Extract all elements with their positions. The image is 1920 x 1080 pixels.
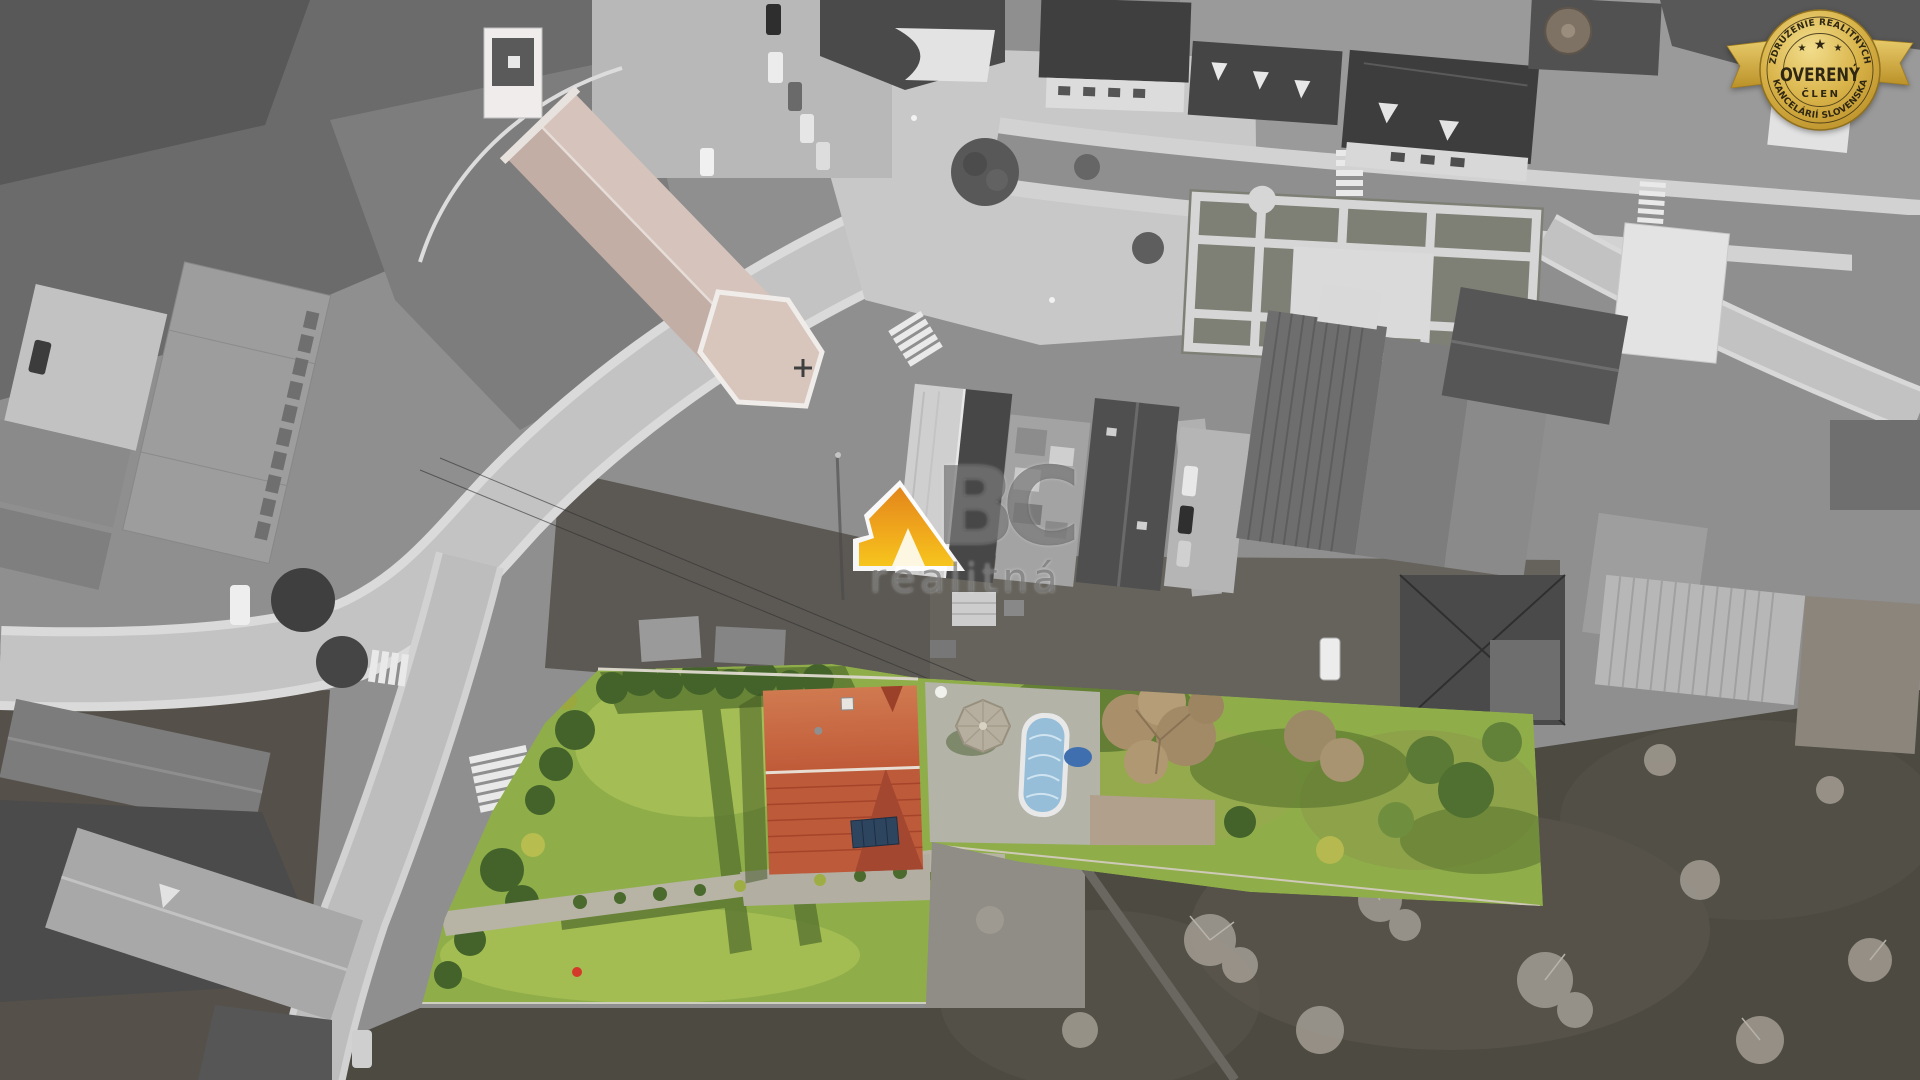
aerial-listing-photo: ZDRUŽENIE REALITNÝCH KANCELÁRIÍ SLOVENSK…	[0, 0, 1920, 1080]
brick-terrace	[1090, 795, 1215, 845]
verified-member-badge: ZDRUŽENIE REALITNÝCH KANCELÁRIÍ SLOVENSK…	[1690, 0, 1920, 150]
red-object	[572, 967, 582, 977]
star-icon: ★	[1798, 43, 1807, 54]
swimming-pool	[1017, 712, 1070, 818]
solar-panels	[851, 817, 899, 848]
white-van	[1320, 638, 1340, 680]
white-building	[1611, 223, 1729, 363]
star-icon: ★	[1834, 43, 1843, 54]
blue-tarp	[1064, 747, 1092, 767]
right-edge-building	[1852, 215, 1920, 325]
hip-roof-house	[1400, 575, 1565, 725]
star-icon: ★	[1814, 37, 1827, 53]
aerial-photo-scene	[0, 0, 1920, 1080]
badge-title: OVERENÝ	[1780, 62, 1860, 86]
badge-subtitle: ČLEN	[1802, 87, 1841, 100]
